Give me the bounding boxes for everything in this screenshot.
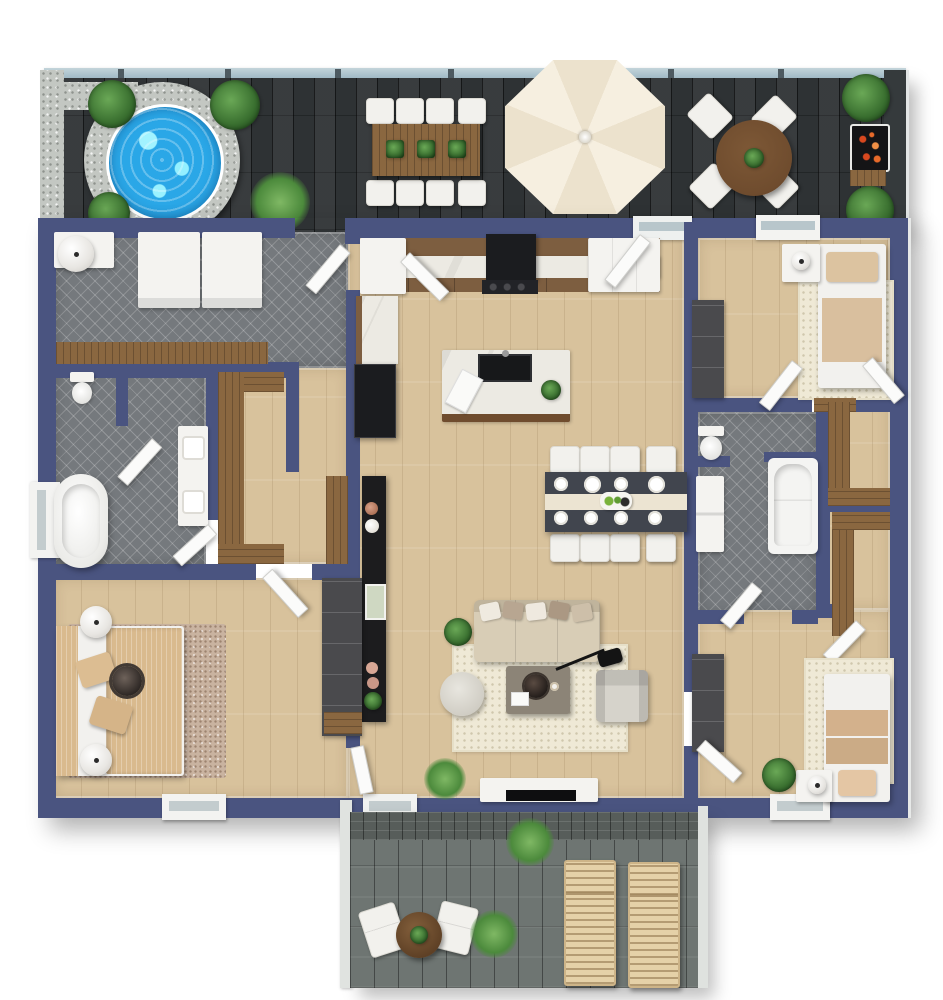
window-master-bottom-glass: [169, 801, 219, 811]
place-setting: [614, 511, 628, 525]
bedroom-br-pillow: [838, 770, 876, 796]
bedroom-br-dresser: [692, 654, 724, 752]
bedroom-br-plant: [762, 758, 796, 792]
wall-right-zone-west: [684, 746, 698, 798]
closet-right-wardrobe: [828, 402, 850, 492]
place-setting: [614, 477, 628, 491]
dining-centerpiece: [600, 492, 632, 510]
table-centerpiece-plant: [744, 148, 764, 168]
outer-wall-bottom: [38, 798, 166, 818]
place-setting: [584, 511, 598, 525]
window-top-bedroom-glass: [761, 221, 815, 230]
gravel-border-left: [40, 70, 64, 232]
outdoor-chair: [426, 98, 454, 124]
table-planter: [386, 140, 404, 158]
closet-right-wardrobe: [832, 512, 890, 530]
living-plant: [444, 618, 472, 646]
outdoor-chair: [458, 98, 486, 124]
living-plant: [424, 758, 466, 800]
master-wardrobe-shelf: [324, 712, 362, 734]
sofa-pillow: [548, 600, 571, 621]
laundry-counter: [56, 342, 268, 364]
kitchen-deck-door-glass: [639, 222, 686, 231]
bedroom-br-blanket: [826, 710, 888, 736]
bedroom-tr-lamp: [792, 252, 810, 270]
dining-chair: [610, 446, 640, 474]
place-setting: [584, 476, 601, 493]
island-herb-plant: [541, 380, 561, 400]
dining-chair: [646, 534, 676, 562]
wall-bath-right-south: [792, 610, 818, 624]
outdoor-chair: [366, 180, 394, 206]
wall-bedroom-tr-south: [856, 398, 892, 412]
bathroom-right-vanity: [696, 476, 724, 552]
coffee-table-book: [511, 692, 529, 706]
bed-decor-tray: [112, 666, 142, 696]
umbrella-pole: [579, 131, 591, 143]
place-setting: [554, 511, 568, 525]
toilet-left-bowl: [72, 382, 92, 404]
bbq-grill: [850, 124, 890, 172]
bedroom-br-lamp: [808, 776, 826, 794]
patio-table-plant: [410, 926, 428, 944]
dining-chair: [550, 446, 580, 474]
place-setting: [648, 476, 665, 493]
dryer: [202, 232, 262, 308]
dining-chair: [610, 534, 640, 562]
master-headboard: [56, 626, 78, 776]
sun-lounger: [564, 860, 616, 986]
bedroom-tr-dresser: [692, 300, 724, 398]
laundry-hamper: [58, 236, 94, 272]
washer: [138, 232, 200, 308]
closet-wardrobe-bottom: [218, 544, 284, 564]
bbq-side-shelf: [850, 170, 886, 186]
tub-interior: [62, 484, 100, 558]
sun-lounger: [628, 862, 680, 988]
sideboard-candle: [365, 502, 378, 515]
island-double-sink: [478, 354, 532, 382]
sideboard-bowl: [366, 662, 378, 674]
toilet-left: [70, 372, 94, 382]
closet-wardrobe-right: [326, 476, 348, 564]
window-bedroom-bottom-glass: [777, 801, 823, 811]
round-pouf: [440, 672, 484, 716]
coffee-table-cup: [550, 682, 559, 691]
sofa-pillow: [571, 602, 594, 622]
place-setting: [554, 477, 568, 491]
outdoor-chair: [458, 180, 486, 206]
vanity-sink: [182, 490, 205, 514]
master-lamp: [80, 744, 112, 776]
sofa-pillow: [502, 601, 524, 621]
sideboard-bowl: [367, 677, 379, 689]
master-lamp: [80, 606, 112, 638]
potted-plant: [210, 80, 260, 130]
table-planter: [448, 140, 466, 158]
built-in-tub-interior: [774, 464, 812, 546]
bedroom-br-blanket: [826, 738, 888, 764]
wall-bedroom-tr-south: [690, 398, 812, 412]
sideboard-candle: [365, 519, 379, 533]
outer-wall-left: [38, 554, 56, 818]
closet-right-wardrobe: [828, 488, 890, 506]
vanity-sink: [182, 436, 205, 460]
wall-bath-left-stub: [116, 368, 128, 426]
island-faucet: [502, 350, 509, 357]
table-planter: [417, 140, 435, 158]
deck-grass-plant: [470, 910, 518, 958]
closet-right-wardrobe: [832, 530, 854, 636]
sideboard-tray: [365, 584, 386, 620]
window-left-bathroom-glass: [37, 490, 46, 550]
tv-screen: [506, 790, 576, 801]
outdoor-chair: [366, 98, 394, 124]
outdoor-chair: [396, 180, 424, 206]
kitchen-side-counter: [356, 296, 398, 364]
outdoor-chair: [426, 180, 454, 206]
outer-wall-top: [690, 218, 764, 238]
lower-deck-frame-right: [698, 806, 708, 988]
sofa-pillow: [525, 602, 547, 621]
wall-kitchen-laundry-stub: [345, 218, 360, 244]
bedroom-tr-pillow: [826, 252, 878, 282]
refrigerator: [354, 364, 396, 438]
place-setting: [648, 511, 662, 525]
deck-sliding-door-glass: [369, 801, 411, 811]
deck-grass-plant: [506, 818, 554, 866]
armchair: [596, 670, 648, 722]
corner-pantry: [360, 238, 406, 294]
wall-hall-closet: [286, 362, 299, 472]
bedroom-tr-blanket: [822, 298, 882, 362]
range-hood: [486, 234, 536, 280]
closet-wardrobe-left: [218, 372, 244, 564]
toilet-right-bowl: [700, 436, 722, 460]
dining-chair: [550, 534, 580, 562]
outdoor-chair: [396, 98, 424, 124]
dining-chair: [580, 446, 610, 474]
wall-master-north: [38, 564, 256, 580]
potted-plant: [842, 74, 890, 122]
potted-plant: [88, 80, 136, 128]
floor-plan-render: [0, 0, 943, 1000]
toilet-right-tank: [698, 426, 724, 436]
dining-chair: [580, 534, 610, 562]
wall-right-zone-west: [684, 222, 698, 628]
cooktop: [482, 280, 538, 294]
dining-chair: [646, 446, 676, 474]
sideboard-plant: [364, 692, 382, 710]
